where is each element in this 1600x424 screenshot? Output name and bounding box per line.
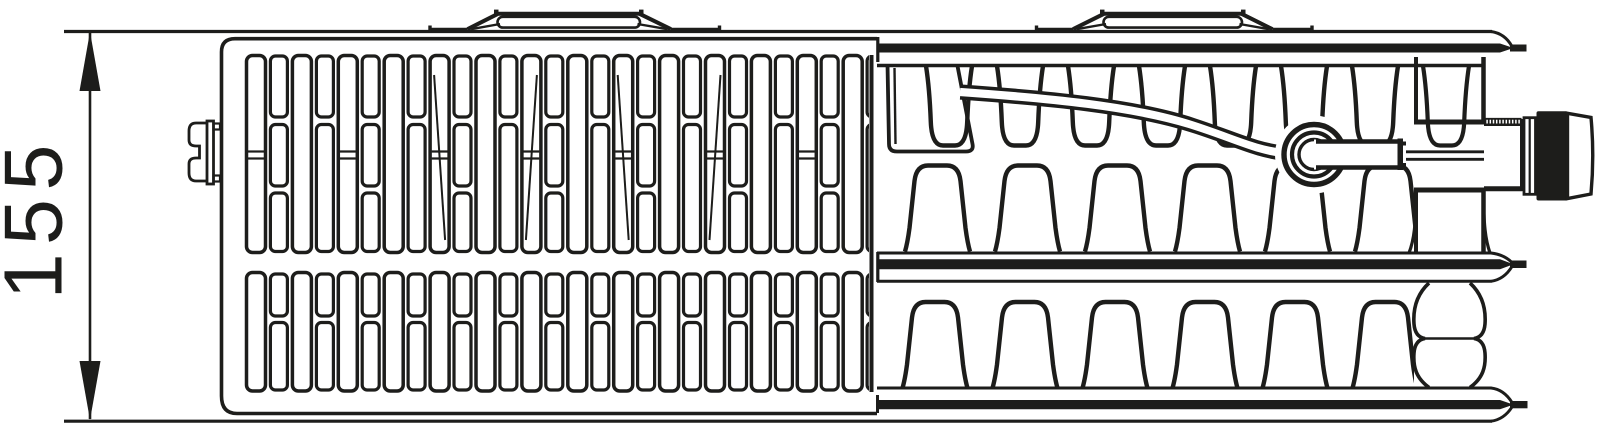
svg-text:155: 155: [0, 145, 80, 300]
